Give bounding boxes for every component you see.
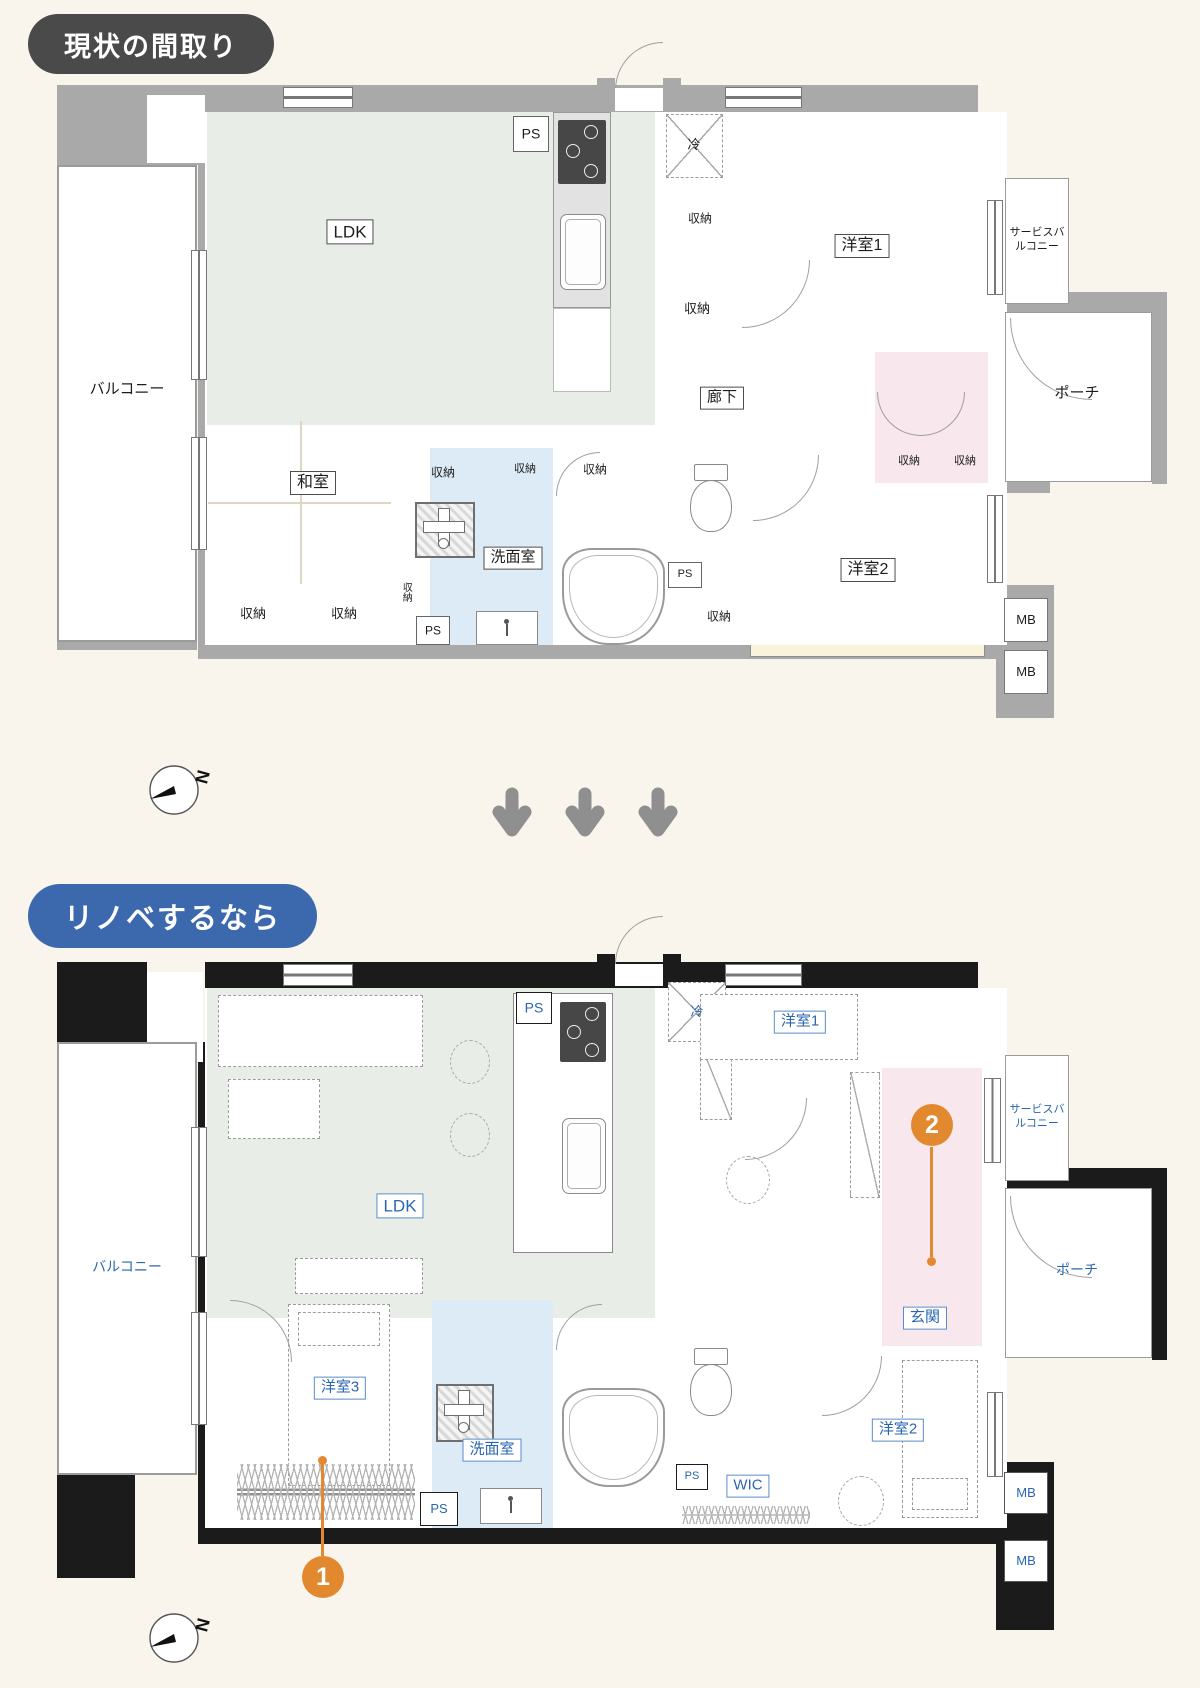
- marker-1: 1: [302, 1556, 344, 1598]
- ps-label: PS: [525, 999, 544, 1017]
- window: [725, 87, 802, 108]
- pillow-outline: [298, 1312, 380, 1346]
- mb-label: MB: [1016, 664, 1036, 680]
- table-outline: [228, 1079, 320, 1139]
- mb-label: MB: [1016, 612, 1036, 628]
- counter-outline: [218, 995, 423, 1067]
- mb-label: MB: [1016, 1553, 1036, 1569]
- service-balcony-label: サービスバルコニー: [1006, 226, 1068, 254]
- storage-label: 収納: [684, 301, 710, 317]
- down-arrow-icon: [494, 788, 530, 840]
- storage-label: 収納: [583, 463, 607, 478]
- washroom-label: 洗面室: [462, 1439, 521, 1462]
- stove-icon: [560, 1002, 606, 1062]
- entry-door-gap: [615, 88, 663, 111]
- western2-label: 洋室2: [872, 1419, 924, 1442]
- toilet-icon: [690, 480, 732, 532]
- page: 現状の間取り バルコニー LDK: [0, 0, 1200, 1688]
- ps-label: PS: [685, 1470, 700, 1484]
- washing-machine-icon: [436, 1384, 494, 1442]
- washroom-label: 洗面室: [483, 547, 542, 570]
- down-arrow-icon: [640, 788, 676, 840]
- wall: [663, 78, 681, 110]
- entry-door-arc: [615, 42, 663, 90]
- window: [191, 1312, 207, 1425]
- corridor-label: 廊下: [700, 387, 744, 410]
- ps-label: PS: [430, 1501, 447, 1517]
- balcony: [57, 165, 197, 642]
- chair-outline: [450, 1040, 490, 1084]
- window: [283, 964, 353, 986]
- mb-label: MB: [1016, 1485, 1036, 1501]
- chair-outline: [726, 1156, 770, 1204]
- storage-label: 収納: [514, 463, 536, 477]
- window: [191, 250, 207, 380]
- window: [987, 1392, 1003, 1477]
- wall-bottom: [198, 1528, 1010, 1544]
- storage-label: 収納: [688, 212, 712, 227]
- closet-rod-hatch: [682, 1506, 810, 1524]
- window: [191, 437, 207, 550]
- storage-label: 収納: [954, 455, 976, 469]
- ldk-label: LDK: [326, 219, 373, 244]
- pillow-outline: [912, 1478, 968, 1510]
- closet-outline: [850, 1072, 880, 1198]
- faucet-stem: [506, 624, 508, 636]
- marker-2-dot: [927, 1257, 936, 1266]
- closet-rod-hatch: [237, 1464, 415, 1520]
- toilet-icon: [690, 1364, 732, 1416]
- ldk-label: LDK: [376, 1193, 423, 1218]
- down-arrow-icon: [567, 788, 603, 840]
- fridge-label: 冷: [687, 137, 700, 153]
- western2-label: 洋室2: [841, 558, 896, 582]
- stove-icon: [558, 120, 606, 184]
- ps-label: PS: [678, 568, 693, 582]
- sink-icon: [560, 214, 606, 290]
- toilet-icon: [694, 1348, 728, 1365]
- wall: [1152, 312, 1167, 484]
- compass-icon: N: [146, 1606, 222, 1668]
- compass-icon: N: [146, 758, 222, 820]
- wic-label: WIC: [726, 1475, 769, 1498]
- tatami-line: [208, 502, 391, 504]
- window: [987, 200, 1003, 295]
- bathtub-icon: [562, 548, 665, 645]
- badge-renovation-plan: リノベするなら: [28, 884, 317, 948]
- window: [984, 1078, 1001, 1163]
- balcony-label: バルコニー: [90, 381, 165, 400]
- storage-label: 収納: [240, 606, 266, 622]
- chair-outline: [838, 1476, 884, 1526]
- marker-1-dot: [318, 1456, 327, 1465]
- faucet-stem: [510, 1501, 512, 1513]
- storage-label: 収納: [431, 466, 455, 481]
- porch-label: ポーチ: [1054, 385, 1099, 404]
- window: [725, 964, 802, 986]
- washing-machine-icon: [415, 502, 475, 558]
- storage-label: 収納: [898, 455, 920, 469]
- bathtub-icon: [562, 1388, 665, 1487]
- wall: [597, 78, 615, 110]
- ps-label: PS: [425, 624, 441, 639]
- storage-label: 収納: [707, 610, 731, 625]
- window: [283, 87, 353, 108]
- marker-2-line: [930, 1147, 933, 1257]
- marker-1-line: [321, 1464, 324, 1556]
- balcony-label: バルコニー: [92, 1258, 162, 1276]
- porch-label: ポーチ: [1056, 1261, 1098, 1279]
- kitchen-counter-end: [553, 308, 611, 392]
- entry-door-gap: [615, 964, 663, 986]
- desk-outline: [295, 1258, 423, 1294]
- storage-label: 収納: [399, 582, 412, 602]
- western1-label: 洋室1: [835, 234, 890, 258]
- ps-label: PS: [522, 125, 541, 143]
- wall-balcony-end: [57, 1475, 135, 1578]
- japanese-room-label: 和室: [290, 471, 336, 495]
- entrance-label: 玄関: [903, 1307, 947, 1330]
- storage-label: 収納: [331, 606, 357, 622]
- chair-outline: [450, 1113, 490, 1157]
- western3-label: 洋室3: [314, 1377, 366, 1400]
- wall-notch: [147, 95, 205, 163]
- window: [191, 1127, 207, 1257]
- western1-label: 洋室1: [774, 1011, 826, 1034]
- window: [987, 495, 1003, 583]
- sink-icon: [562, 1118, 606, 1194]
- entry-door-arc: [615, 916, 663, 964]
- badge-current-plan: 現状の間取り: [28, 14, 274, 74]
- fridge-label: 冷: [690, 1004, 703, 1020]
- marker-2: 2: [911, 1104, 953, 1146]
- wall: [597, 954, 615, 986]
- service-balcony-label: サービスバルコニー: [1006, 1103, 1068, 1131]
- wall: [1152, 1188, 1167, 1360]
- toilet-icon: [694, 464, 728, 481]
